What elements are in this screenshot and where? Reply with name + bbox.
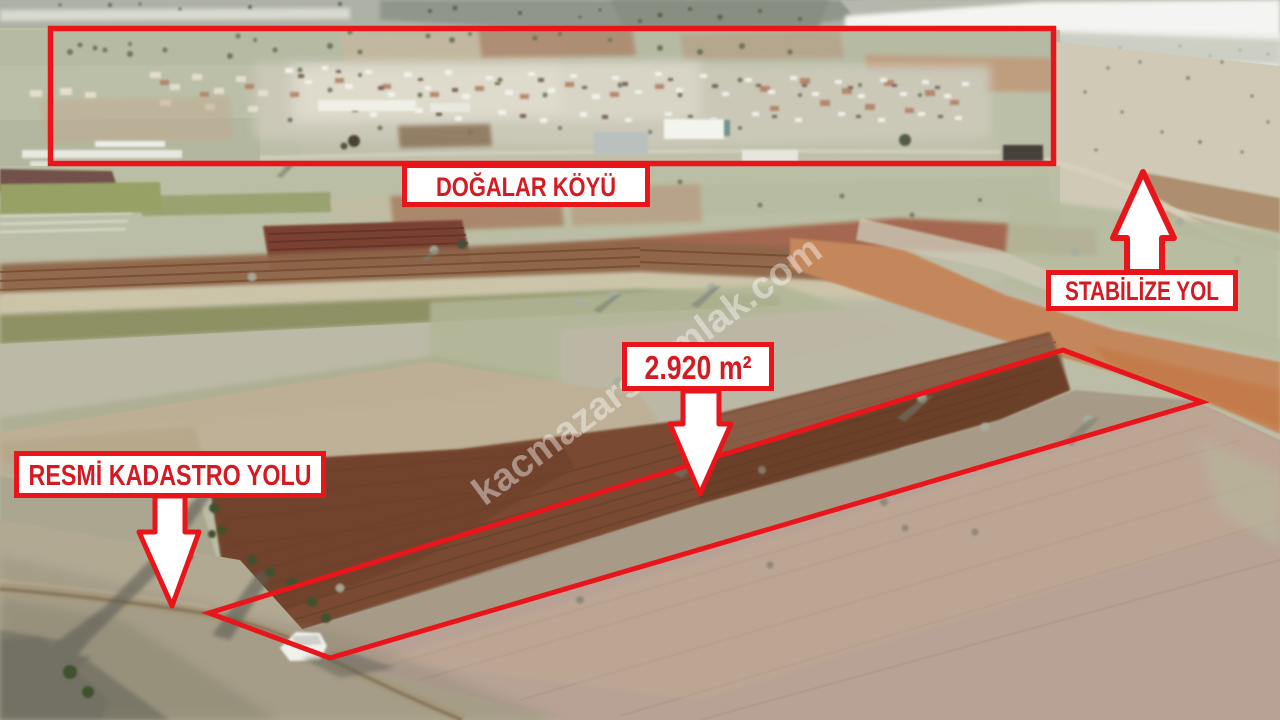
svg-text:STABİLİZE YOL: STABİLİZE YOL	[1065, 276, 1219, 306]
svg-text:2.920 m²: 2.920 m²	[645, 349, 752, 386]
svg-text:DOĞALAR KÖYÜ: DOĞALAR KÖYÜ	[436, 171, 616, 202]
svg-text:RESMİ KADASTRO YOLU: RESMİ KADASTRO YOLU	[29, 460, 312, 492]
